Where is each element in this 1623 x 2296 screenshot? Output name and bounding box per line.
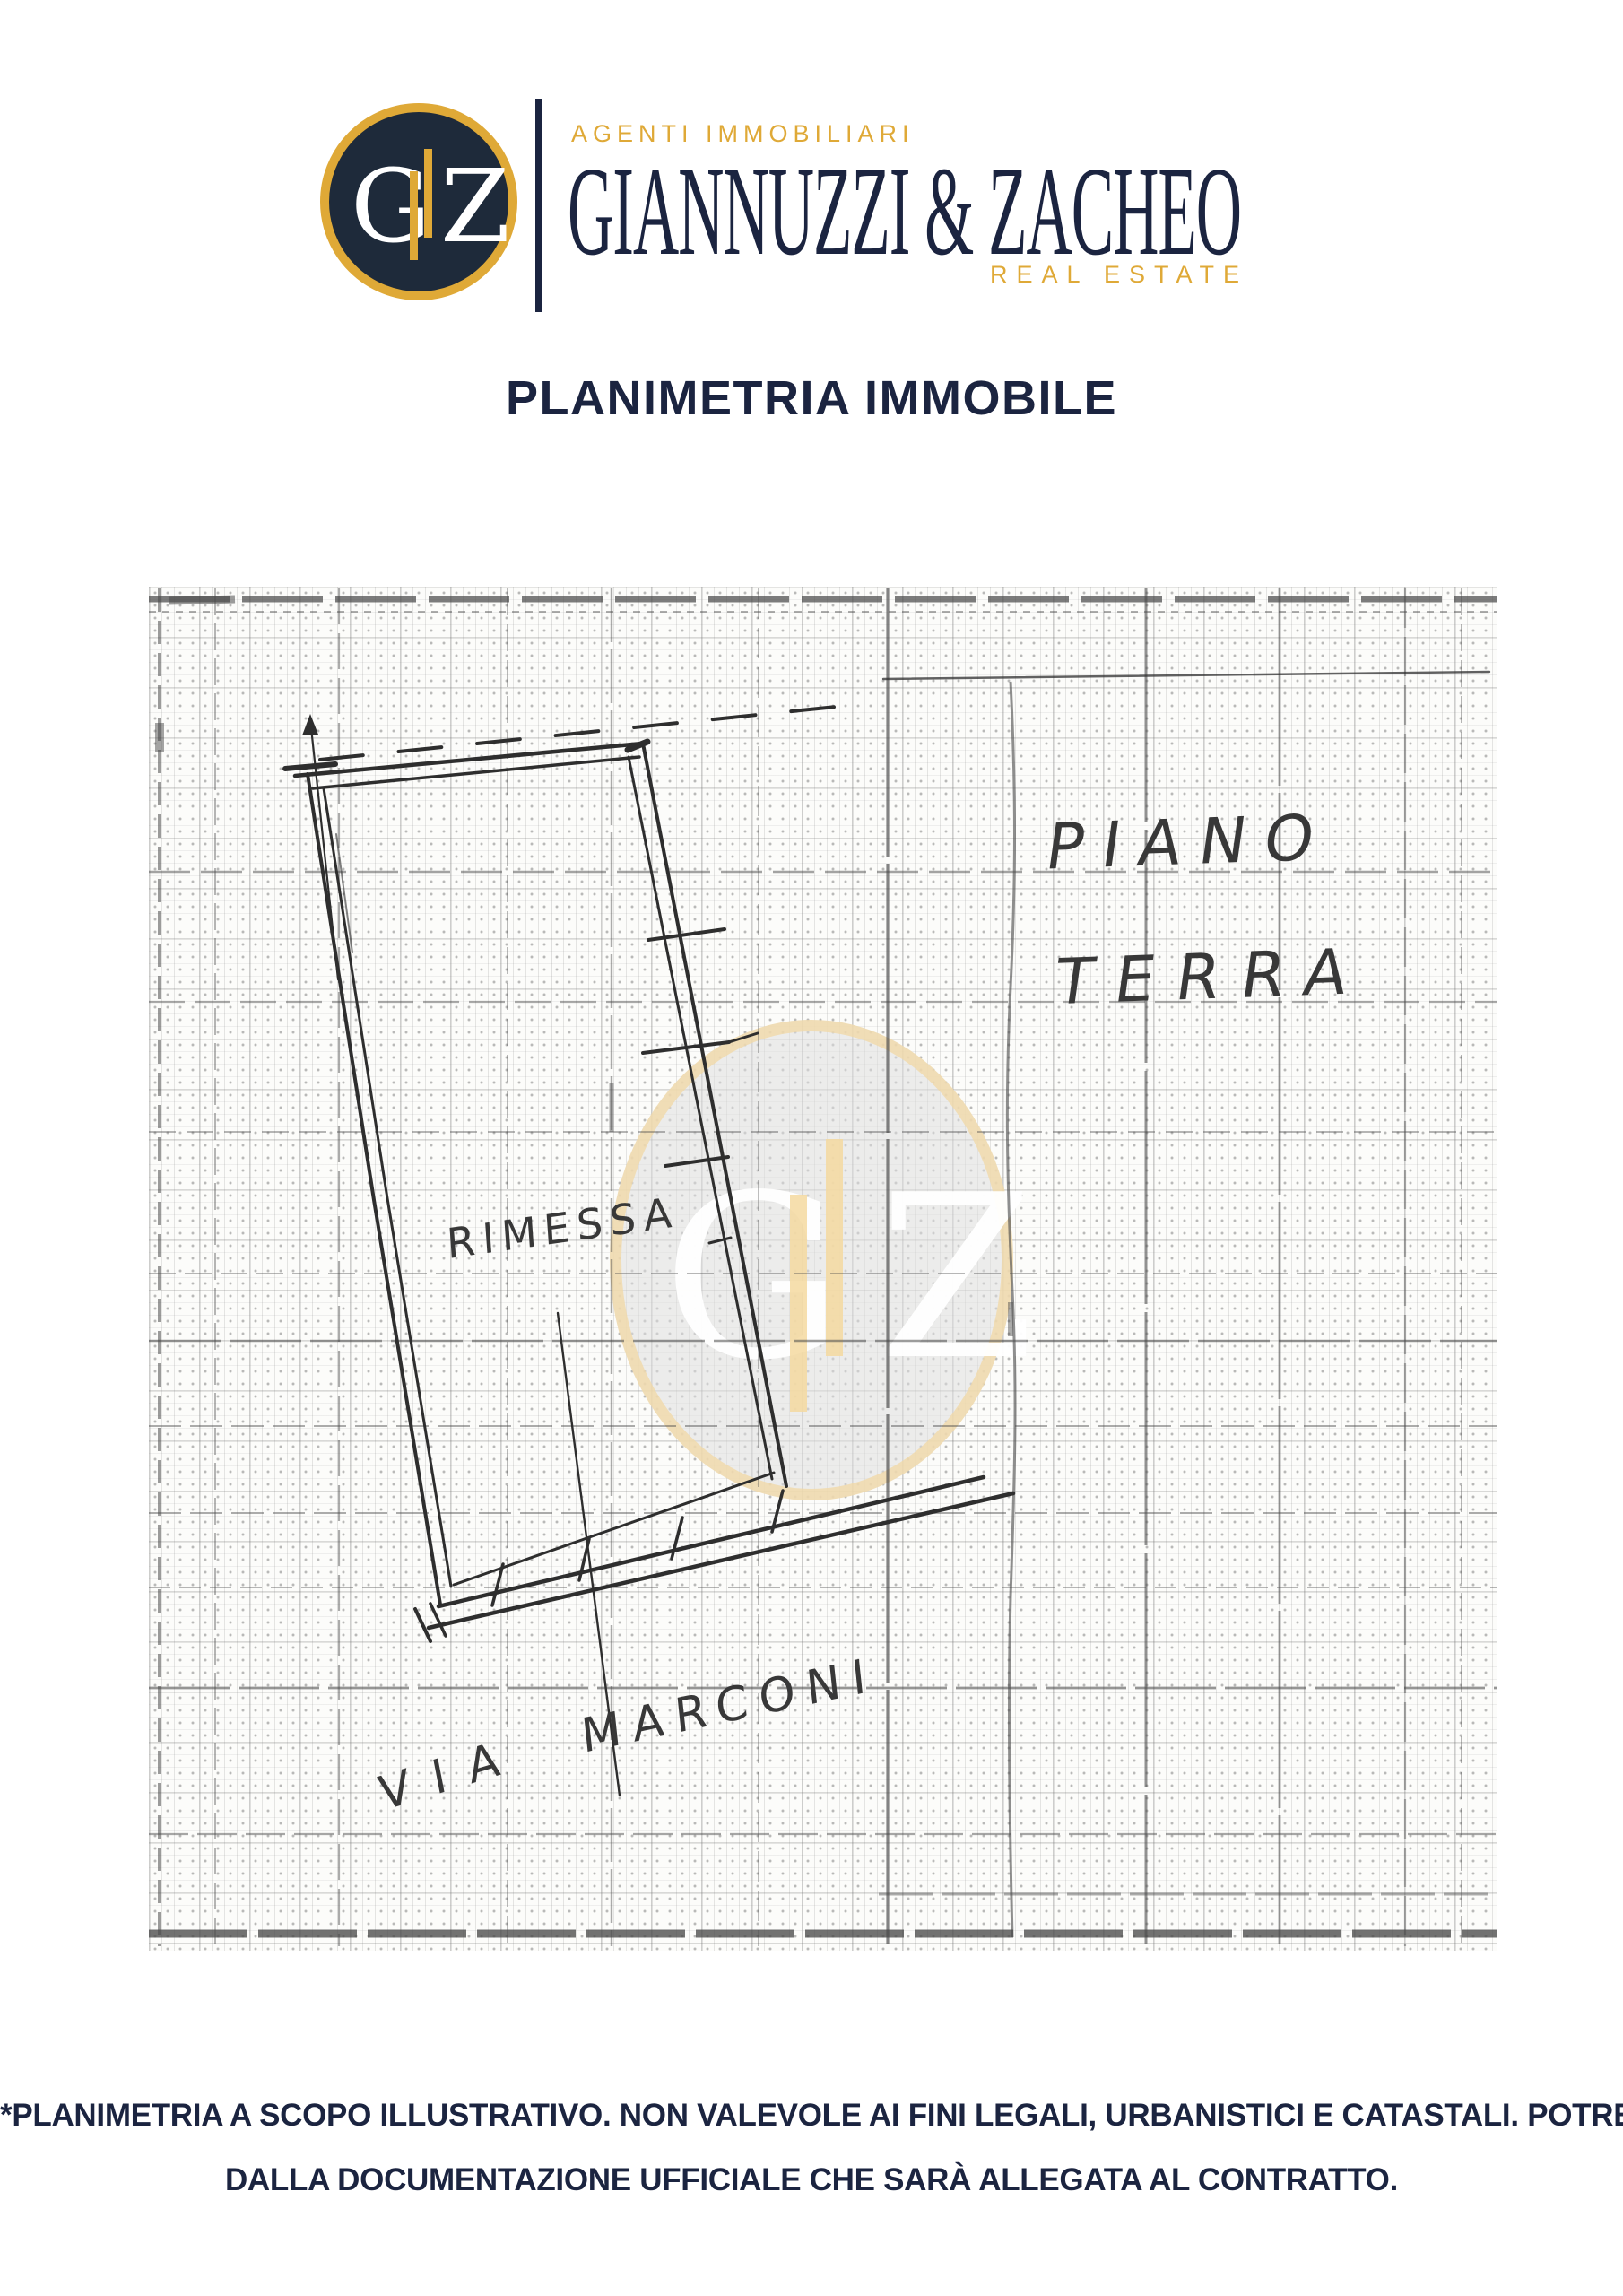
watermark-gold-bar-right-icon xyxy=(826,1139,843,1356)
logo-monogram-z: Z xyxy=(440,157,510,257)
disclaimer-line1: *PLANIMETRIA A SCOPO ILLUSTRATIVO. NON V… xyxy=(0,2098,1623,2134)
gold-bar-left-icon xyxy=(410,171,418,260)
floor-label-line2: TERRA xyxy=(1050,935,1374,1020)
brand-subtitle: REAL ESTATE xyxy=(568,261,1248,289)
floor-label-line1: PIANO xyxy=(1041,800,1337,884)
brand-name: GIANNUZZI & ZACHEO xyxy=(568,147,1241,274)
brand-logo: G Z xyxy=(320,103,517,300)
watermark-monogram-z: Z xyxy=(878,1166,1035,1392)
document-page: G Z AGENTI IMMOBILIARI GIANNUZZI & ZACHE… xyxy=(0,0,1623,2296)
logo-divider xyxy=(535,99,542,312)
watermark-logo: G Z xyxy=(610,1020,1013,1500)
gold-bar-right-icon xyxy=(424,149,432,238)
disclaimer-line2: DALLA DOCUMENTAZIONE UFFICIALE CHE SARÀ … xyxy=(0,2162,1623,2198)
watermark-gold-bar-left-icon xyxy=(790,1195,807,1412)
page-title: PLANIMETRIA IMMOBILE xyxy=(0,370,1623,426)
watermark-monogram-g: G xyxy=(663,1166,843,1392)
logo-monogram-g: G xyxy=(351,157,430,257)
